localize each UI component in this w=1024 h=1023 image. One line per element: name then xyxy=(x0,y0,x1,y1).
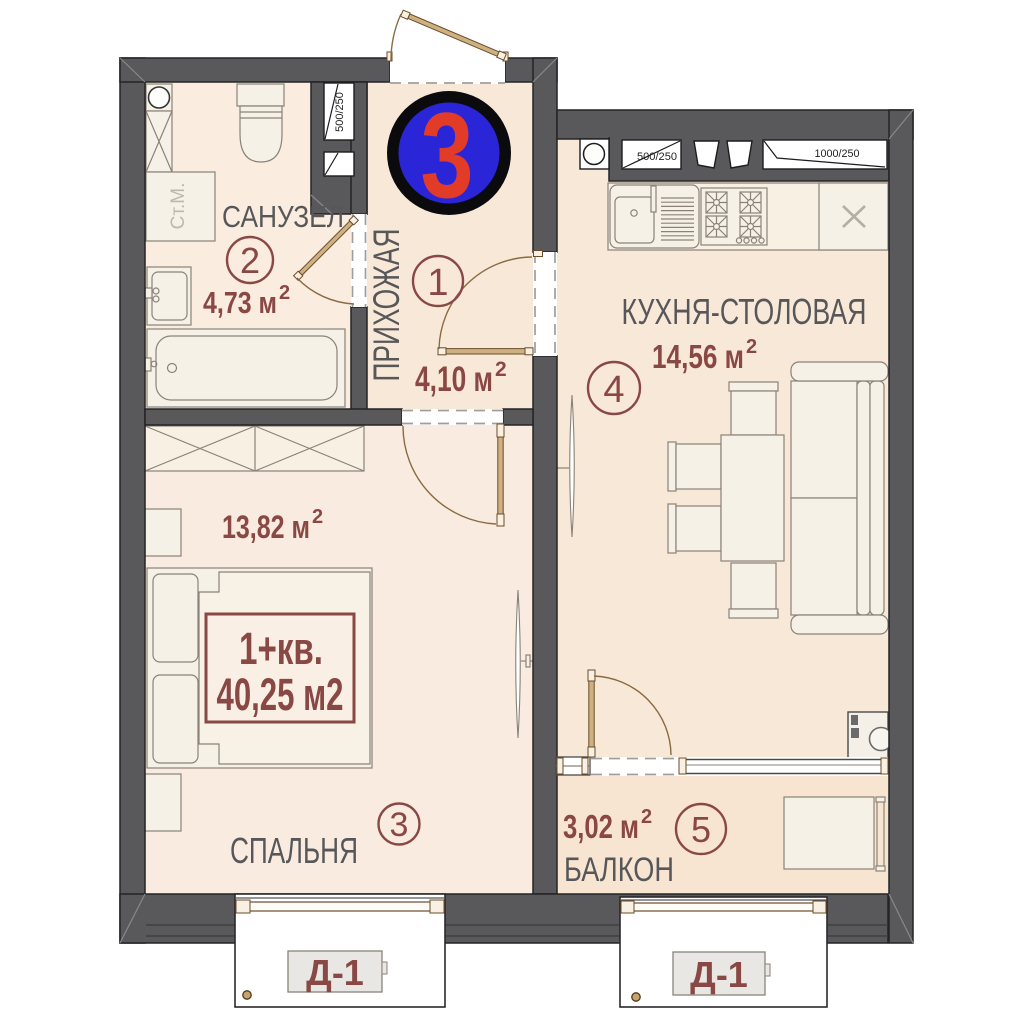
svg-text:БАЛКОН: БАЛКОН xyxy=(564,851,674,889)
svg-text:13,82 м: 13,82 м xyxy=(222,509,310,545)
svg-text:2: 2 xyxy=(312,506,323,528)
svg-text:2: 2 xyxy=(495,358,507,381)
svg-text:1+кв.: 1+кв. xyxy=(239,623,323,674)
svg-text:4,73 м: 4,73 м xyxy=(203,285,277,320)
svg-text:СПАЛЬНЯ: СПАЛЬНЯ xyxy=(230,830,358,871)
svg-text:1: 1 xyxy=(427,262,448,304)
svg-text:2: 2 xyxy=(641,806,652,828)
svg-text:4,10 м: 4,10 м xyxy=(415,360,493,399)
svg-text:Ст.М.: Ст.М. xyxy=(168,183,189,230)
svg-text:КУХНЯ-СТОЛОВАЯ: КУХНЯ-СТОЛОВАЯ xyxy=(622,291,867,332)
svg-text:3: 3 xyxy=(390,806,409,844)
svg-text:500/250: 500/250 xyxy=(637,151,677,163)
svg-text:САНУЗЕЛ: САНУЗЕЛ xyxy=(222,199,344,234)
svg-text:2: 2 xyxy=(746,336,757,358)
svg-text:40,25 м2: 40,25 м2 xyxy=(217,669,344,720)
svg-text:3,02 м: 3,02 м xyxy=(563,808,639,845)
svg-text:Д-1: Д-1 xyxy=(690,954,748,995)
svg-text:1000/250: 1000/250 xyxy=(815,148,860,160)
svg-text:3: 3 xyxy=(421,87,474,223)
svg-text:ПРИХОЖАЯ: ПРИХОЖАЯ xyxy=(366,229,407,382)
svg-text:4: 4 xyxy=(603,369,624,411)
svg-text:Д-1: Д-1 xyxy=(306,952,364,993)
svg-text:2: 2 xyxy=(240,240,260,281)
svg-text:2: 2 xyxy=(279,282,290,304)
svg-text:500/250: 500/250 xyxy=(334,92,346,132)
svg-text:5: 5 xyxy=(691,809,711,850)
svg-text:14,56 м: 14,56 м xyxy=(652,338,744,375)
